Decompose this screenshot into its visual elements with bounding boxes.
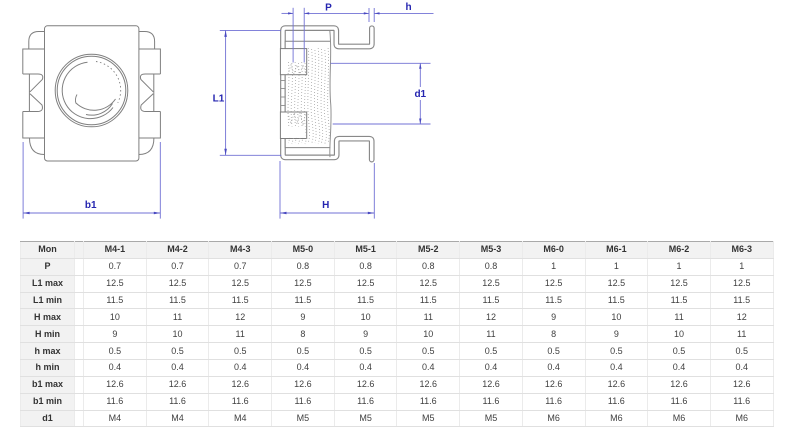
svg-text:d1: d1 — [414, 89, 426, 100]
svg-text:L1: L1 — [213, 94, 225, 105]
svg-text:H: H — [322, 200, 329, 211]
svg-text:h: h — [405, 2, 411, 13]
svg-text:b1: b1 — [85, 200, 97, 211]
svg-text:P: P — [325, 3, 332, 14]
